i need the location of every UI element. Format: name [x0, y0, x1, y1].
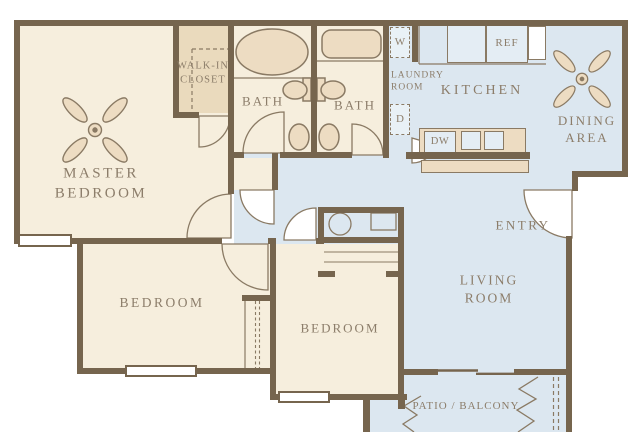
- master-bedroom-door: [187, 194, 231, 238]
- wall: [363, 400, 370, 432]
- entry-label: ENTRY: [495, 218, 550, 235]
- wall: [566, 236, 572, 375]
- bedroom-middle-label: BEDROOM: [300, 321, 379, 338]
- wall: [318, 207, 404, 213]
- sink-right-icon: [321, 81, 345, 99]
- wall: [572, 171, 578, 191]
- bath-right-door: [352, 124, 383, 155]
- kitchen-label: KITCHEN: [441, 82, 523, 100]
- walk-in-closet-label: WALK-IN CLOSET: [161, 59, 245, 86]
- bathtub-rect-icon: [322, 30, 381, 58]
- patio-dashed-lines: [554, 377, 559, 432]
- bath-left-door: [243, 112, 284, 153]
- dishwasher-label: DW: [431, 135, 450, 149]
- ceiling-fan-icon: [59, 94, 130, 165]
- wall: [234, 152, 244, 158]
- sink-basin-right: [484, 131, 504, 150]
- living-room-label: LIVING ROOM: [437, 271, 541, 306]
- wall: [272, 153, 278, 190]
- apartment-floor-plan: MASTER BEDROOM WALK-IN CLOSET BATH BATH …: [0, 0, 640, 432]
- stove-box: [447, 25, 486, 63]
- sliding-door: [436, 371, 518, 374]
- dining-area-label: DINING AREA: [539, 113, 635, 147]
- wall: [383, 20, 389, 158]
- ceiling-fan-icon: [551, 48, 614, 111]
- wall: [311, 26, 317, 153]
- wall: [14, 20, 20, 244]
- wall: [316, 238, 324, 244]
- walk-in-closet-door: [199, 116, 230, 147]
- bathtub-oval-icon: [236, 29, 308, 75]
- wall: [77, 238, 83, 374]
- wall: [406, 152, 530, 159]
- wall: [514, 369, 572, 375]
- wall: [318, 237, 404, 243]
- bedroom-left-label: BEDROOM: [119, 294, 204, 312]
- bath-left-label: BATH: [242, 94, 284, 111]
- wall: [386, 271, 404, 277]
- sink-basin-left: [461, 131, 481, 150]
- wall: [228, 26, 234, 194]
- wall: [242, 295, 276, 301]
- bath-right-label: BATH: [334, 98, 376, 115]
- wall: [173, 112, 199, 118]
- wall: [14, 20, 628, 26]
- sink-left-icon: [283, 81, 307, 99]
- ac-unit-icon: [371, 213, 396, 230]
- washer-label: W: [395, 35, 405, 49]
- bedroom-middle-door: [284, 208, 316, 240]
- wall: [318, 271, 335, 277]
- wall: [280, 152, 352, 158]
- master-bedroom-label: MASTER BEDROOM: [39, 165, 163, 204]
- wall: [398, 397, 405, 409]
- wall: [622, 20, 628, 177]
- water-heater-icon: [329, 213, 351, 235]
- wall: [412, 26, 418, 62]
- toilet-left-icon: [289, 124, 309, 150]
- wall: [566, 375, 572, 432]
- window: [278, 391, 330, 403]
- window: [125, 365, 197, 377]
- breakfast-bar: [421, 160, 529, 173]
- wall: [270, 238, 276, 398]
- wall: [572, 171, 628, 177]
- bedroom-left-door: [222, 244, 268, 290]
- wall: [404, 369, 438, 375]
- refrigerator-label: REF: [495, 36, 518, 50]
- dryer-label: D: [396, 112, 404, 126]
- window: [18, 234, 72, 247]
- pantry-box: [528, 26, 546, 60]
- patio-balcony-label: PATIO / BALCONY: [413, 399, 520, 413]
- toilet-right-icon: [319, 124, 339, 150]
- linen-closet-door: [240, 190, 274, 224]
- bedroom-closet-doors: [245, 301, 260, 368]
